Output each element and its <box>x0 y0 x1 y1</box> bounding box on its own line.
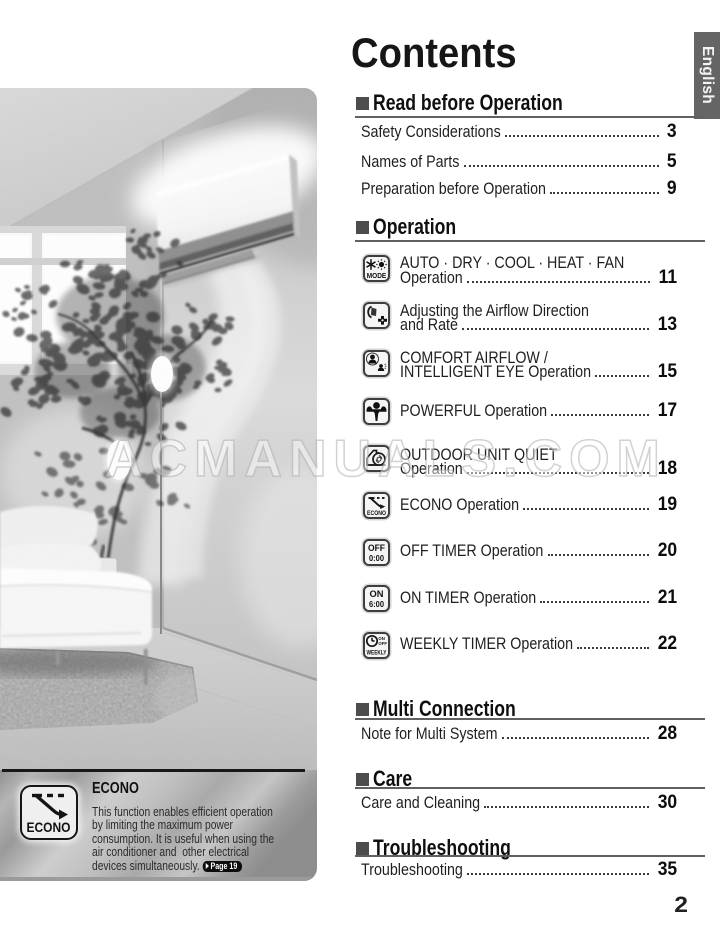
svg-text:6:00: 6:00 <box>369 599 384 609</box>
svg-text:0:00: 0:00 <box>369 553 384 563</box>
svg-text:OFF: OFF <box>378 641 387 646</box>
svg-text:ECONO: ECONO <box>27 820 71 835</box>
svg-text:ECONO: ECONO <box>367 510 386 517</box>
svg-text:WEEKLY: WEEKLY <box>367 651 387 657</box>
svg-text:MODE: MODE <box>367 271 387 280</box>
